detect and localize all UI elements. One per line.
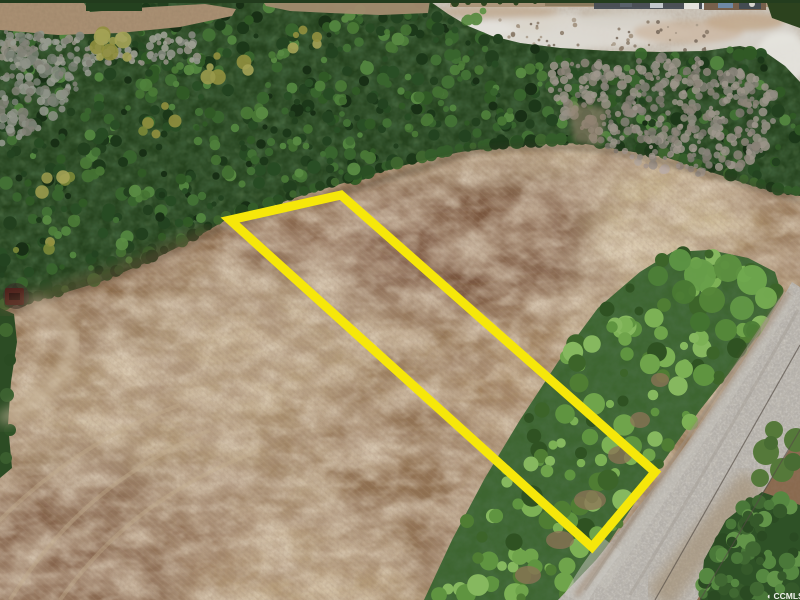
svg-text:◖ CCMLS: ◖ CCMLS	[766, 591, 800, 600]
